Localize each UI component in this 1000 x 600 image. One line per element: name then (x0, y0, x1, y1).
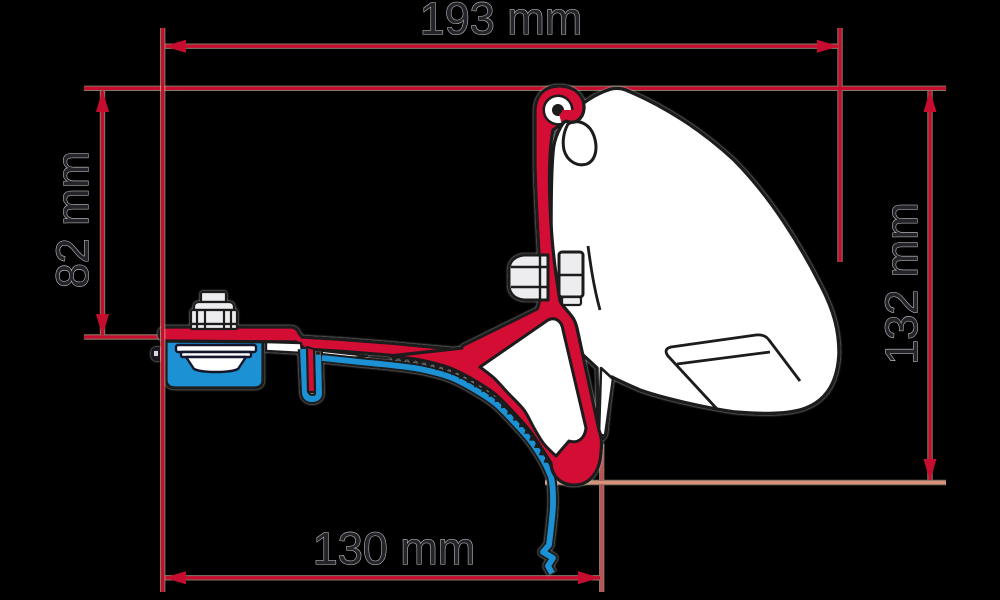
svg-text:193 mm: 193 mm (420, 0, 583, 44)
svg-text:132 mm: 132 mm (876, 202, 927, 365)
svg-text:130 mm: 130 mm (313, 523, 476, 574)
svg-text:82 mm: 82 mm (47, 151, 98, 289)
